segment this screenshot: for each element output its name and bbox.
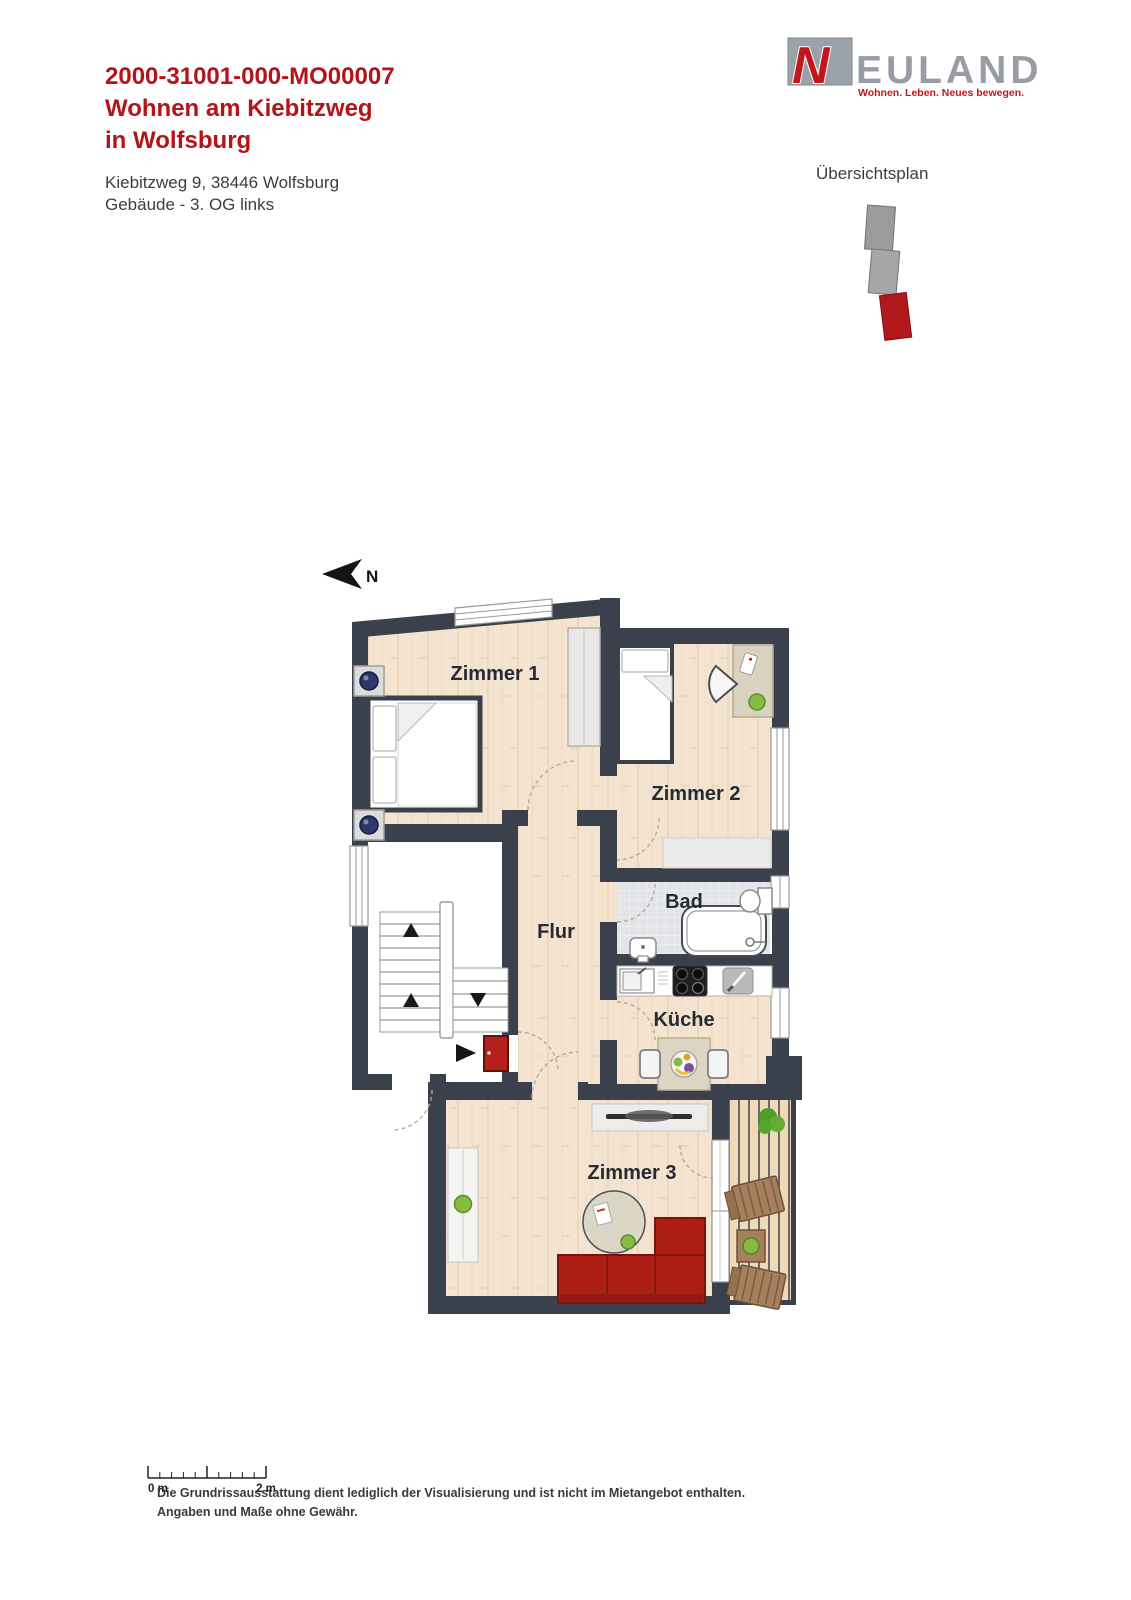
chair — [640, 1050, 660, 1078]
tub-drain-icon — [746, 938, 754, 946]
object-code: 2000-31001-000-MO00007 — [105, 62, 395, 92]
tv-screen — [625, 1110, 673, 1122]
room-label-kueche: Küche — [653, 1009, 714, 1031]
lamp-icon — [360, 816, 378, 834]
burner-icon — [677, 983, 688, 994]
logo-n-icon: N — [792, 37, 831, 95]
balcony-door — [712, 1140, 729, 1282]
pillow — [622, 650, 668, 672]
north-arrow-icon — [322, 559, 362, 589]
address-line: Kiebitzweg 9, 38446 Wolfsburg — [105, 172, 339, 194]
stair-stringer — [440, 902, 453, 1038]
overview-building-segment — [868, 249, 900, 295]
overview-highlight-unit — [879, 292, 911, 340]
window-kueche — [771, 988, 789, 1038]
window-stairwell — [350, 846, 368, 926]
logo-wordmark: EULAND — [856, 49, 1040, 92]
pillow — [373, 706, 396, 751]
burner-icon — [693, 983, 704, 994]
kitchen-sink-basin — [623, 972, 641, 990]
lamp-highlight — [364, 676, 369, 681]
bathtub — [682, 906, 766, 956]
room-label-zimmer2: Zimmer 2 — [652, 783, 741, 805]
fruit-orange — [684, 1054, 691, 1061]
plant-icon — [749, 694, 765, 710]
page-subtitle: in Wolfsburg — [105, 126, 251, 156]
window-bad — [771, 876, 789, 908]
logo-tagline: Wohnen. Leben. Neues bewegen. — [858, 87, 1024, 99]
sink-drain-icon — [641, 945, 645, 949]
dresser — [663, 838, 771, 868]
disclaimer-line-2: Angaben und Maße ohne Gewähr. — [157, 1503, 358, 1522]
fruit-apple — [674, 1058, 683, 1067]
unit-line: Gebäude - 3. OG links — [105, 194, 274, 216]
document-page: 2000-31001-000-MO00007 Wohnen am Kiebitz… — [0, 0, 1131, 1600]
floor-plan: N — [318, 545, 810, 1340]
burner-icon — [693, 969, 704, 980]
room-label-flur: Flur — [537, 921, 575, 943]
burner-icon — [677, 969, 688, 980]
door-handle-icon — [487, 1051, 491, 1055]
overview-site-plan — [848, 198, 923, 348]
north-arrow: N — [322, 559, 378, 589]
overview-plan-label: Übersichtsplan — [816, 164, 928, 184]
lamp-icon — [360, 672, 378, 690]
chair — [708, 1050, 728, 1078]
company-logo: N EULAND Wohnen. Leben. Neues bewegen. — [780, 32, 1040, 102]
plant-icon — [743, 1238, 759, 1254]
pillow — [373, 757, 396, 803]
plant-icon — [621, 1235, 635, 1249]
window-zimmer2 — [771, 728, 789, 830]
overview-building-segment — [864, 205, 895, 251]
disclaimer-line-1: Die Grundrissausstattung dient lediglich… — [157, 1484, 745, 1503]
round-rug — [583, 1191, 645, 1253]
plant-icon — [455, 1196, 472, 1213]
room-label-zimmer3: Zimmer 3 — [588, 1162, 677, 1184]
north-label: N — [366, 567, 378, 586]
lamp-highlight — [364, 820, 369, 825]
sofa-backrest — [560, 1294, 703, 1302]
room-label-zimmer1: Zimmer 1 — [451, 663, 540, 685]
page-title: Wohnen am Kiebitzweg — [105, 94, 373, 124]
room-label-bad: Bad — [665, 891, 703, 913]
floor-flur — [502, 800, 617, 1090]
toilet — [740, 890, 760, 912]
